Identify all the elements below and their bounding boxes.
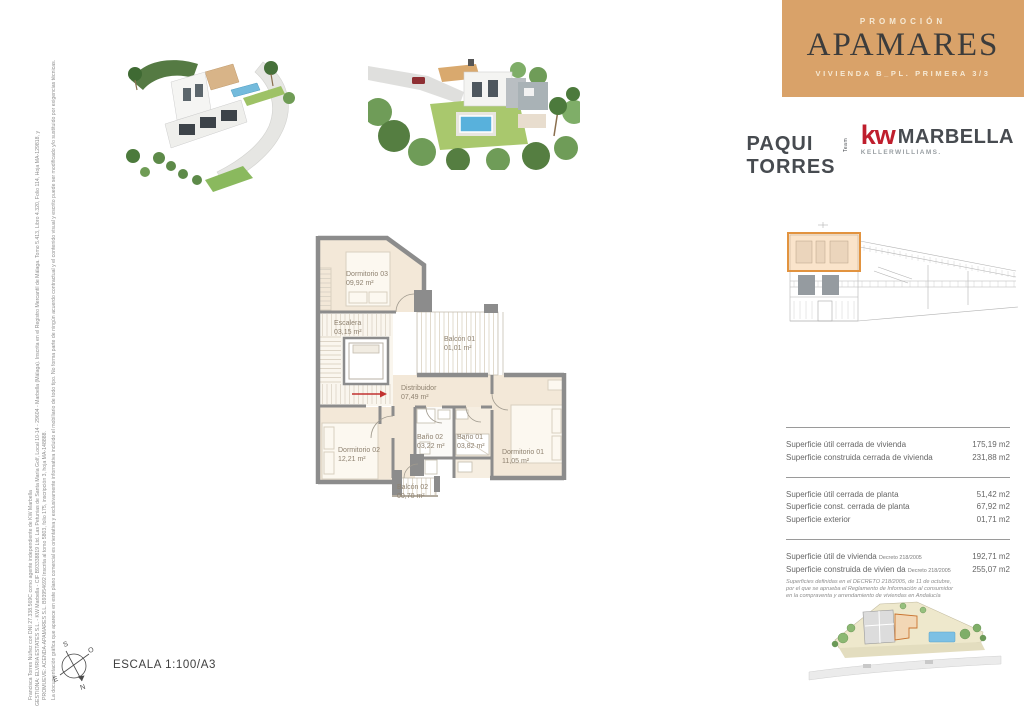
surface-row: Superficie construida de vivien da Decre… bbox=[786, 564, 1010, 577]
room-label: Dormitorio 02 bbox=[338, 447, 380, 454]
room-area: 03,82 m² bbox=[457, 443, 485, 450]
surface-row: Superficie exterior 01,71 m2 bbox=[786, 514, 1010, 527]
legal-text-line: Francisca Torres Núñez con DNI 27.338.56… bbox=[29, 490, 35, 700]
kw-logo: kw bbox=[861, 124, 895, 147]
promotion-header: PROMOCIÓN APAMARES VIVIENDA B_PL. PRIMER… bbox=[782, 0, 1024, 97]
page-title: APAMARES bbox=[782, 27, 1024, 64]
compass-rose-icon: S O E N bbox=[52, 638, 98, 692]
room-label: Baño 02 bbox=[417, 434, 443, 441]
legal-text-line: GESTIONA: ELVIRIA ESTATES S.L. - KW Marb… bbox=[36, 131, 42, 706]
room-area: 03,22 m² bbox=[417, 443, 445, 450]
promotion-kicker: PROMOCIÓN bbox=[782, 17, 1024, 26]
villa-render-aerial-1-image bbox=[113, 38, 303, 198]
surface-label: Superficie construida cerrada de viviend… bbox=[786, 452, 933, 465]
site-plan-drawing bbox=[805, 598, 1005, 690]
floor-plan-drawing: Dormitorio 03 09,92 m² Escalera 03,15 m²… bbox=[308, 228, 628, 508]
highlighted-floor-outline bbox=[788, 233, 860, 271]
room-label: Balcón 01 bbox=[444, 336, 475, 343]
room-area: 07,49 m² bbox=[401, 394, 429, 401]
compass-e-label: E bbox=[52, 676, 59, 684]
room-label: Distribuidor bbox=[401, 385, 437, 392]
compass-s-label: S bbox=[62, 641, 69, 649]
legal-text-line: PROMUEVE: ACENDA-APAMARES S.L. B93954692… bbox=[43, 431, 49, 700]
keller-williams-label: KELLERWILLIAMS. bbox=[861, 149, 1014, 156]
room-label: Balcón 02 bbox=[397, 484, 428, 491]
surface-value: 51,42 m2 bbox=[977, 489, 1010, 502]
elevator-shaft bbox=[344, 338, 388, 384]
surface-table: Superficie útil cerrada de vivienda 175,… bbox=[786, 427, 1010, 600]
surface-label: Superficie útil cerrada de vivienda bbox=[786, 439, 906, 452]
room-area: 09,92 m² bbox=[346, 280, 374, 287]
surface-value: 175,19 m2 bbox=[972, 439, 1010, 452]
surface-label: Superficie útil de vivienda Decreto 218/… bbox=[786, 551, 922, 564]
surface-row: Superficie útil de vivienda Decreto 218/… bbox=[786, 551, 1010, 564]
unit-subtitle: VIVIENDA B_PL. PRIMERA 3/3 bbox=[782, 69, 1024, 78]
surface-row: Superficie const. cerrada de planta 67,9… bbox=[786, 501, 1010, 514]
agent-name: PAQUI TORRES bbox=[747, 133, 836, 179]
room-label: Baño 01 bbox=[457, 434, 483, 441]
room-label: Escalera bbox=[334, 320, 361, 327]
room-area: 12,21 m² bbox=[338, 456, 366, 463]
room-area: 00,70 m² bbox=[397, 493, 425, 500]
room-area: 11,05 m² bbox=[502, 458, 530, 465]
legal-text-line: La documentación gráfica que aparece en … bbox=[52, 60, 58, 700]
surface-value: 192,71 m2 bbox=[972, 551, 1010, 564]
brand-name: MARBELLA bbox=[898, 127, 1014, 147]
room-area: 03,15 m² bbox=[334, 329, 362, 336]
room-label: Dormitorio 03 bbox=[346, 271, 388, 278]
compass-n-label: N bbox=[79, 684, 86, 692]
surface-value: 231,88 m2 bbox=[972, 452, 1010, 465]
surface-value: 67,92 m2 bbox=[977, 501, 1010, 514]
agency-logo: PAQUI TORRES Team kw MARBELLA KELLERWILL… bbox=[748, 124, 1014, 168]
brochure-page: La documentación gráfica que aparece en … bbox=[0, 0, 1024, 723]
surface-label: Superficie útil cerrada de planta bbox=[786, 489, 899, 502]
building-elevation-drawing bbox=[778, 205, 1024, 323]
surface-label: Superficie const. cerrada de planta bbox=[786, 501, 910, 514]
surface-label: Superficie construida de vivien da Decre… bbox=[786, 564, 951, 577]
team-label: Team bbox=[843, 138, 849, 152]
surface-row: Superficie útil cerrada de planta 51,42 … bbox=[786, 489, 1010, 502]
surface-row: Superficie útil cerrada de vivienda 175,… bbox=[786, 439, 1010, 452]
room-label: Dormitorio 01 bbox=[502, 449, 544, 456]
room-area: 01,01 m² bbox=[444, 345, 472, 352]
decree-label: Decreto 218/2005 bbox=[908, 568, 951, 574]
surface-value: 255,07 m2 bbox=[972, 564, 1010, 577]
surface-value: 01,71 m2 bbox=[977, 514, 1010, 527]
scale-label: ESCALA 1:100/A3 bbox=[113, 659, 216, 671]
decree-label: Decreto 218/2005 bbox=[879, 555, 922, 561]
surface-row: Superficie construida cerrada de viviend… bbox=[786, 452, 1010, 465]
villa-render-aerial-2-image bbox=[368, 52, 580, 170]
balcony-1-area bbox=[417, 312, 498, 375]
surface-label: Superficie exterior bbox=[786, 514, 850, 527]
compass-o-label: O bbox=[87, 646, 95, 655]
